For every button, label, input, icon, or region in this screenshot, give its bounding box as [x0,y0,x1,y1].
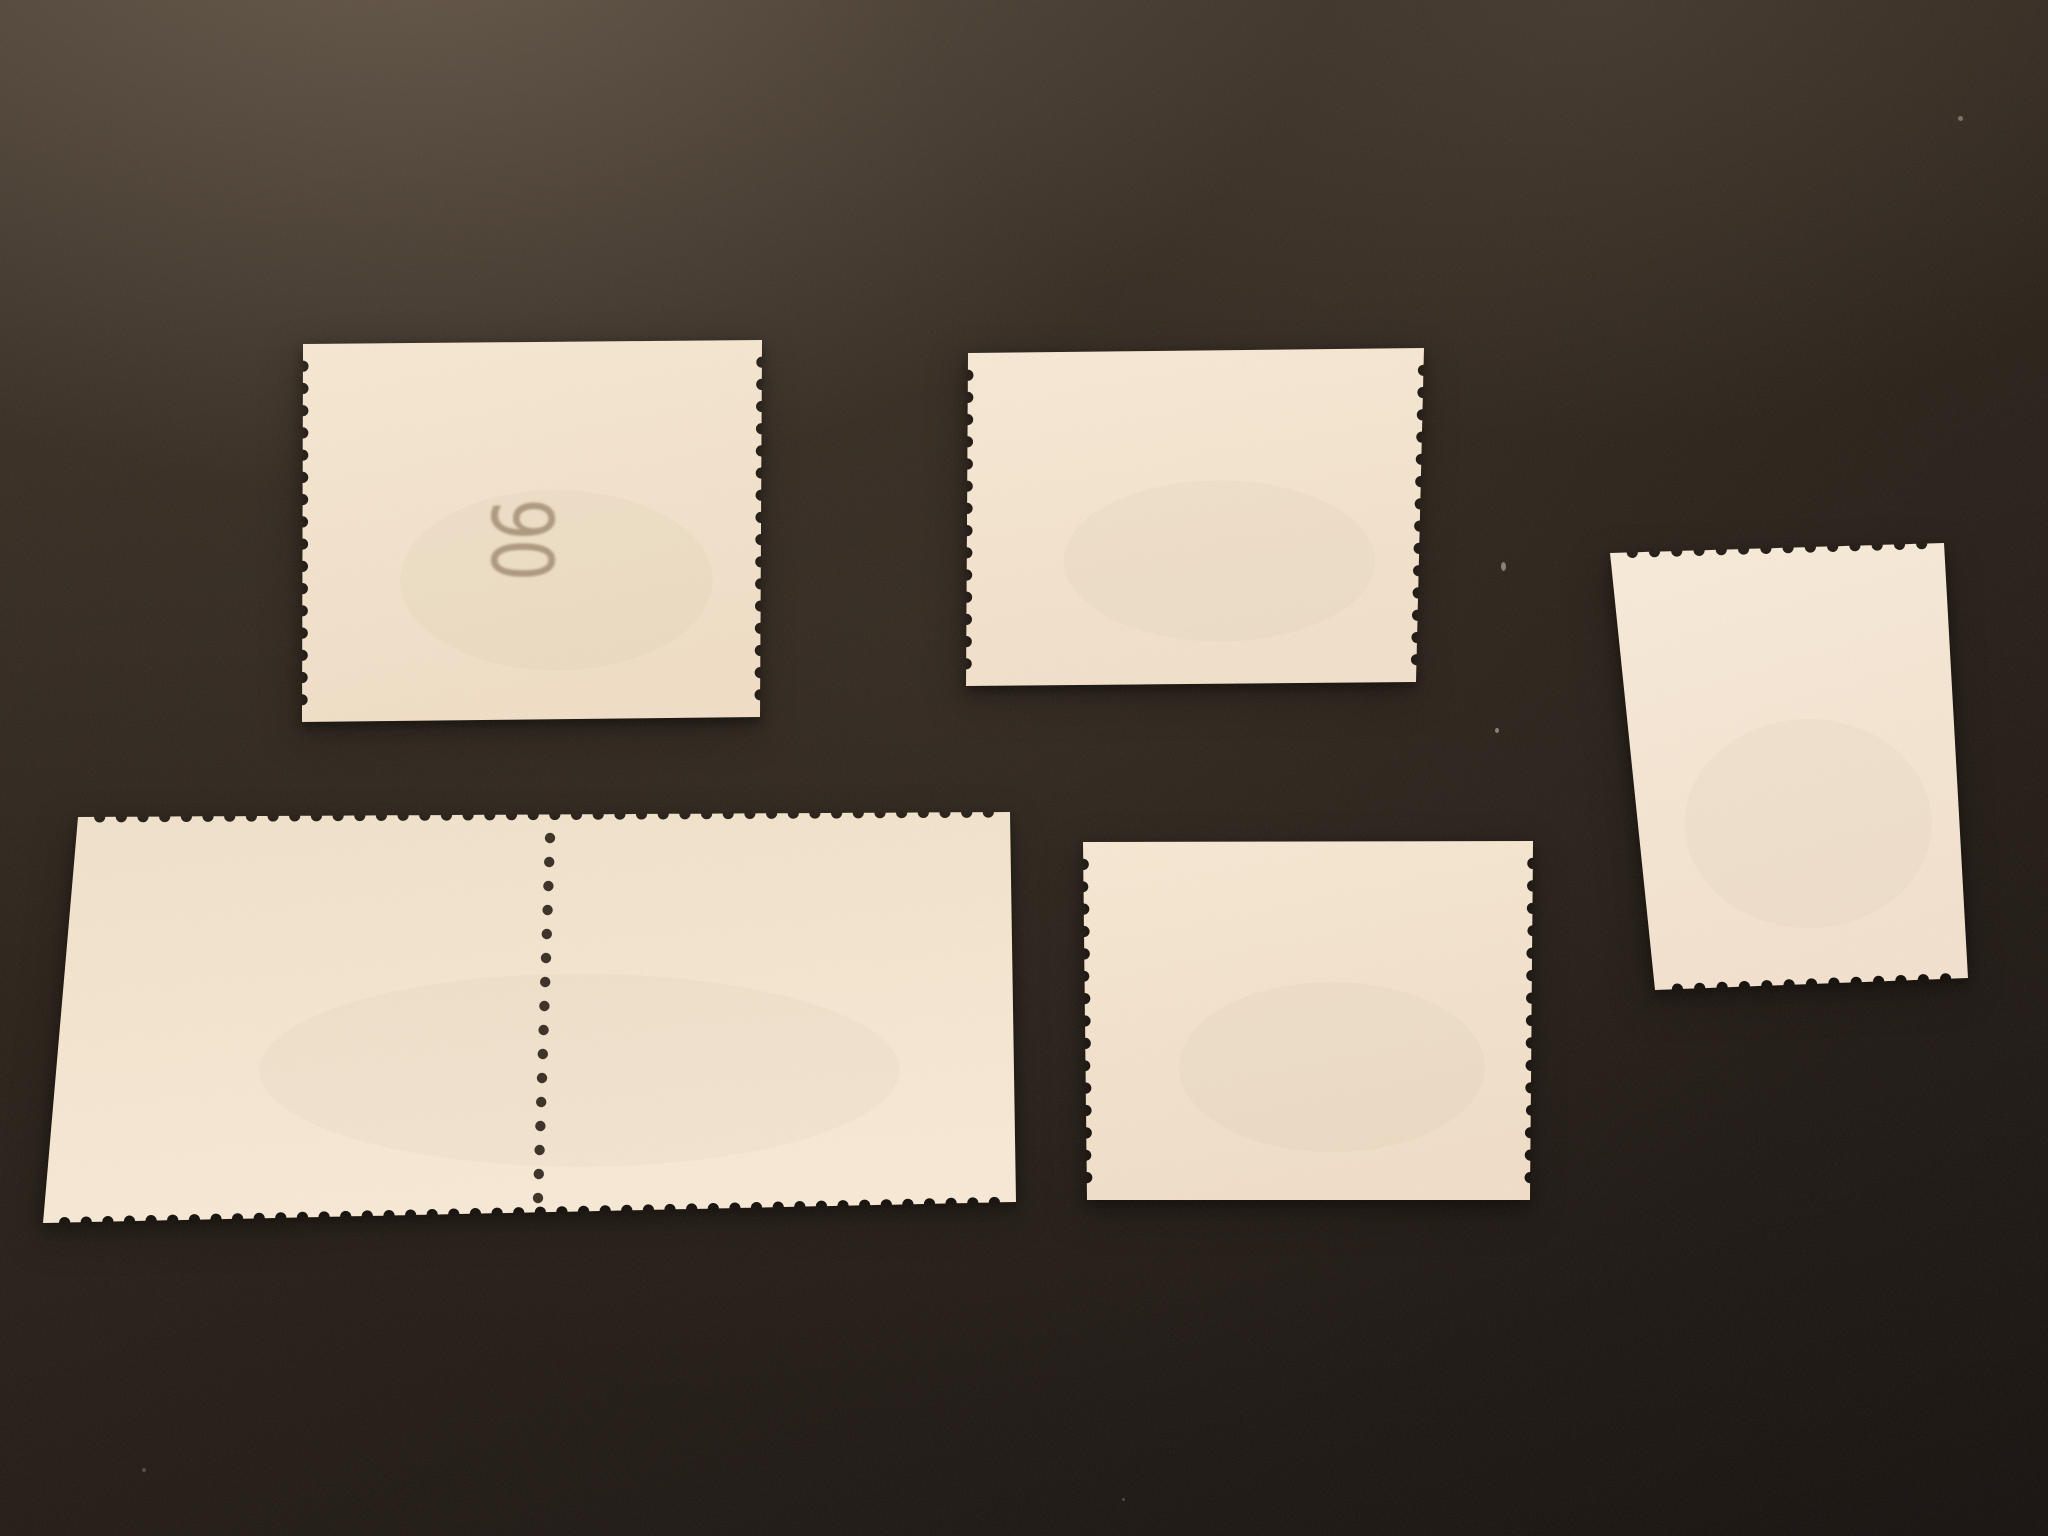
show-through-smudge [1064,480,1375,641]
dust-speck [1495,728,1499,733]
show-through-smudge [1179,982,1485,1152]
dust-speck [1122,1498,1125,1501]
perforation-hole [536,1097,546,1107]
perforation-hole [541,953,551,963]
perforation-hole [542,929,552,939]
perforation-hole [542,905,552,915]
photo-of-stamp-backs: 90 [0,0,2048,1536]
perforation-hole [538,1025,548,1035]
stamp-back-top-left-coil-stamp [288,326,776,736]
perforation-hole [535,1121,545,1131]
dust-speck [1501,562,1506,571]
stamp-back-bottom-left-stamp-pair [29,798,1030,1237]
perforation-hole [534,1145,544,1155]
perforation-hole [533,1193,543,1203]
perforation-hole [537,1073,547,1083]
stamp-back-right-vertical-stamp [1596,529,1982,1004]
show-through-smudge [1685,719,1932,928]
perforation-hole [543,881,553,891]
dust-speck [142,1468,146,1472]
perforation-hole [544,857,554,867]
perforation-hole [534,1169,544,1179]
perforation-hole [545,833,555,843]
stamp-back-top-middle-coil-stamp [952,334,1438,700]
perforation-hole [539,1001,549,1011]
show-through-smudge [259,974,900,1167]
stamp-back-bottom-middle-coil-stamp [1069,827,1547,1214]
dust-speck [1958,116,1963,121]
perforation-hole [540,977,550,987]
show-through-smudge [400,490,712,670]
perforation-hole [538,1049,548,1059]
